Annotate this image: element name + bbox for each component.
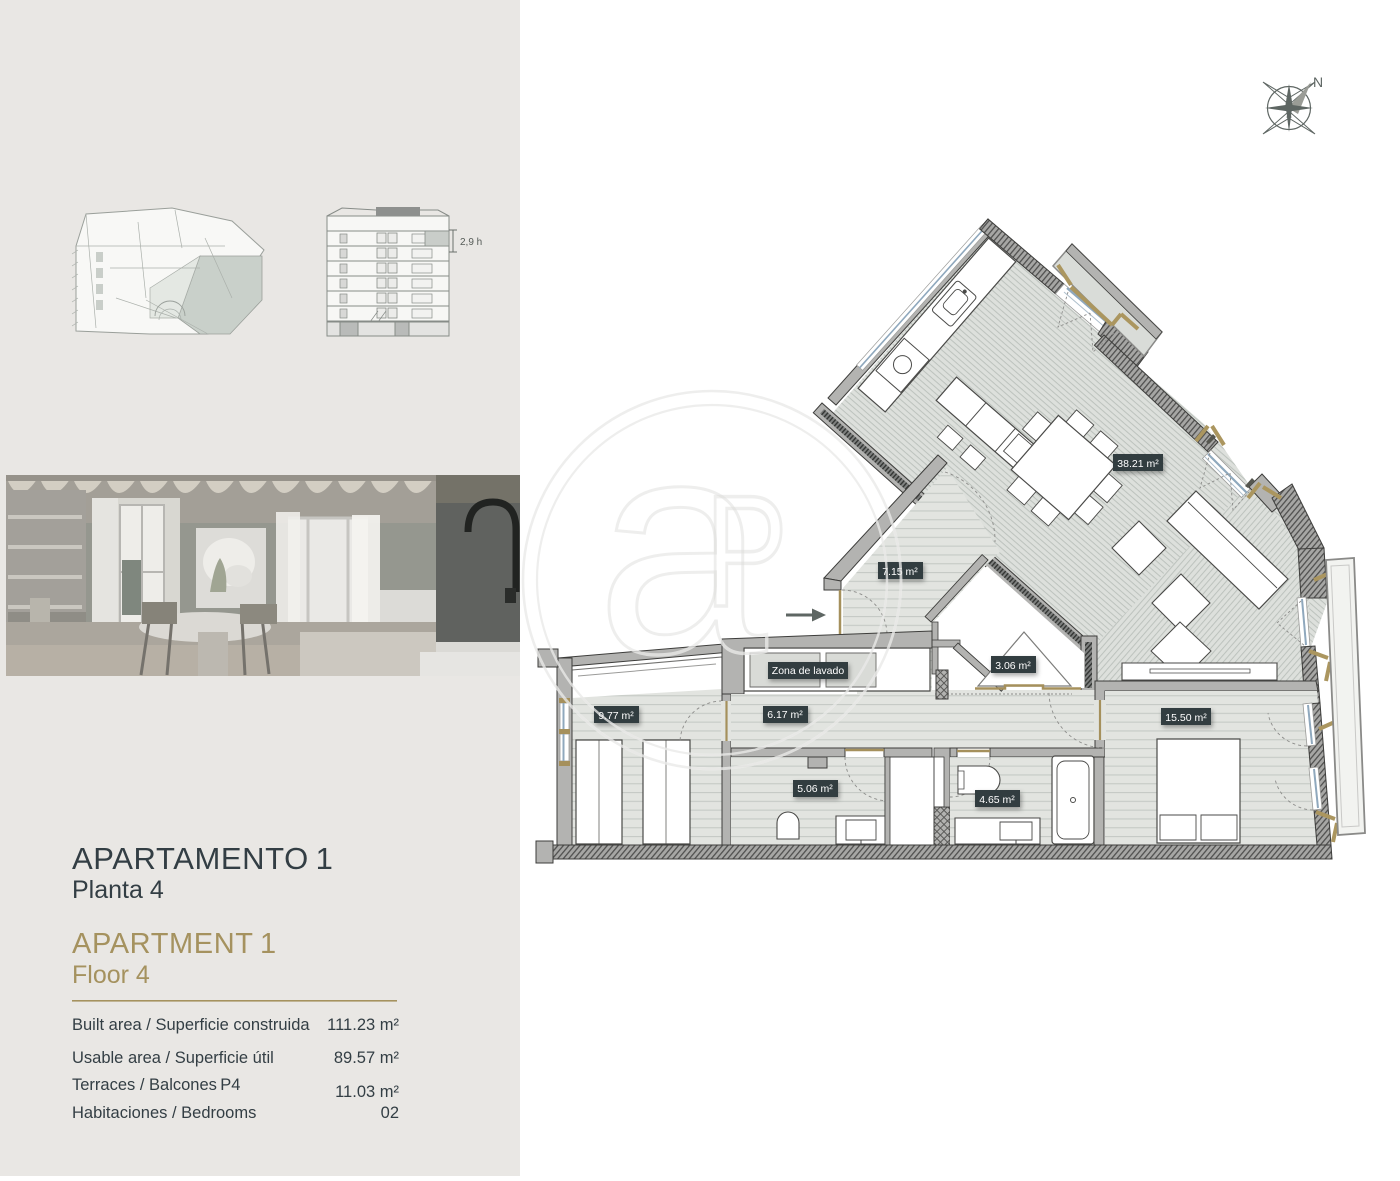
svg-text:Floor 4: Floor 4	[72, 961, 150, 989]
svg-text:15.50 m²: 15.50 m²	[1165, 712, 1207, 724]
svg-text:P: P	[705, 463, 788, 640]
svg-text:N: N	[1313, 74, 1323, 90]
svg-text:Terraces / Balcones P4: Terraces / Balcones P4	[72, 1076, 240, 1094]
svg-text:APARTAMENTO 1: APARTAMENTO 1	[72, 841, 334, 876]
svg-text:111.23 m²: 111.23 m²	[327, 1016, 399, 1034]
svg-text:Usable area / Superficie útil: Usable area / Superficie útil	[72, 1049, 274, 1067]
svg-text:APARTMENT 1: APARTMENT 1	[72, 928, 277, 960]
svg-text:5.06 m²: 5.06 m²	[797, 783, 833, 795]
svg-text:3.06 m²: 3.06 m²	[995, 660, 1031, 672]
svg-text:Habitaciones / Bedrooms: Habitaciones / Bedrooms	[72, 1104, 256, 1122]
svg-text:02: 02	[381, 1104, 399, 1122]
svg-text:38.21 m²: 38.21 m²	[1117, 458, 1159, 470]
svg-text:Zona de lavado: Zona de lavado	[772, 665, 845, 677]
svg-text:6.17 m²: 6.17 m²	[767, 709, 803, 721]
svg-text:4.65 m²: 4.65 m²	[979, 794, 1015, 806]
svg-text:11.03 m²: 11.03 m²	[335, 1083, 399, 1101]
svg-text:Built area / Superficie constr: Built area / Superficie construida	[72, 1016, 310, 1034]
svg-text:Planta 4: Planta 4	[72, 876, 164, 904]
svg-text:2,9 h: 2,9 h	[460, 237, 482, 248]
svg-text:89.57 m²: 89.57 m²	[334, 1049, 400, 1067]
